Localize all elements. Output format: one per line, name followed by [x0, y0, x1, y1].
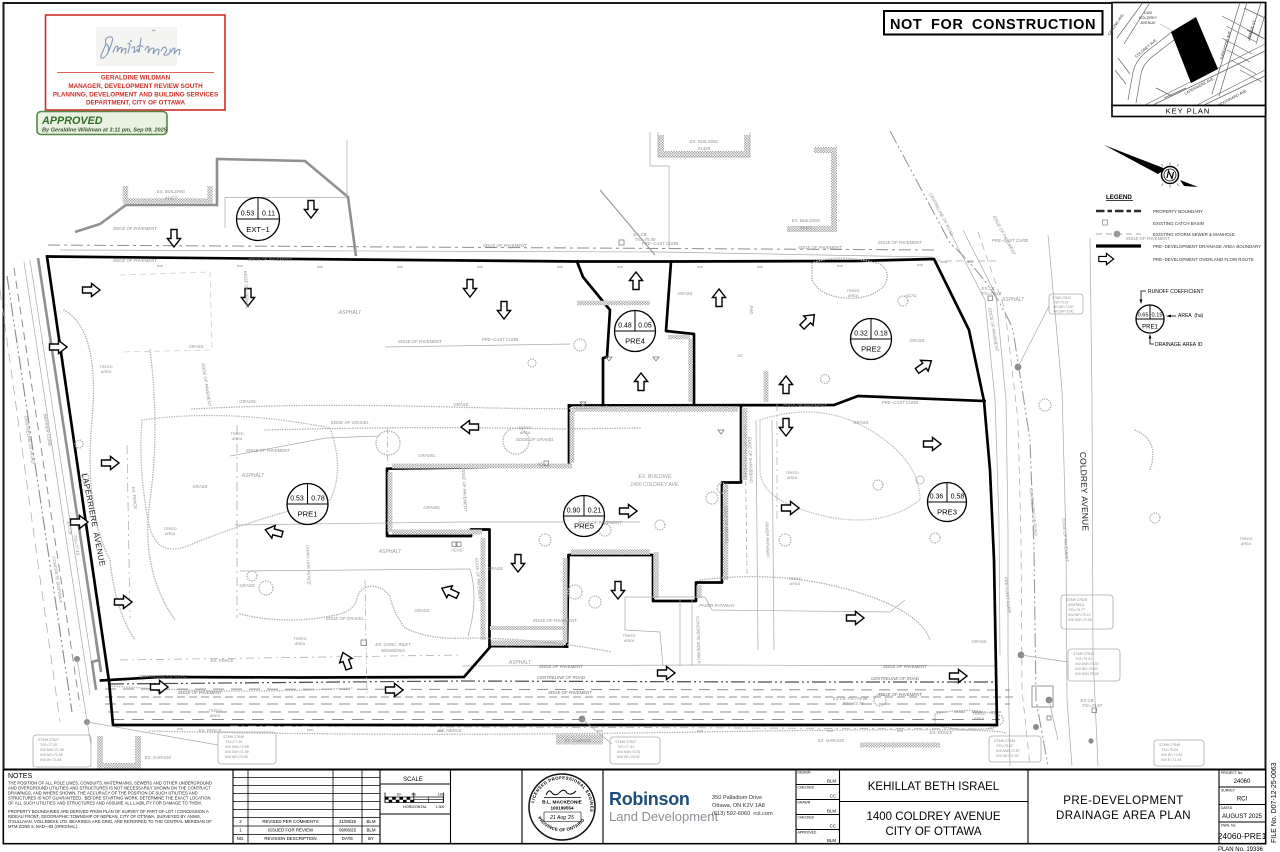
svg-text:OF ALL SUCH UTILITIES AND STRU: OF ALL SUCH UTILITIES AND STRUCTURES AND… [8, 801, 202, 806]
svg-text:COLDREY: COLDREY [1139, 16, 1158, 20]
svg-text:EX. GARAGE: EX. GARAGE [818, 738, 845, 743]
svg-text:EX. FENCE: EX. FENCE [131, 486, 138, 509]
svg-text:EX. BUILDING: EX. BUILDING [792, 218, 821, 223]
svg-text:GRASS: GRASS [677, 291, 692, 296]
svg-text:ISSUED FOR REVIEW: ISSUED FOR REVIEW [268, 828, 314, 833]
svg-text:ASPHALT: ASPHALT [508, 660, 532, 666]
svg-text:0.65: 0.65 [1138, 313, 1149, 319]
svg-text:INV.SE=70.83: INV.SE=70.83 [1075, 667, 1098, 671]
svg-text:GRASS: GRASS [188, 344, 203, 349]
svg-text:DRAWN: DRAWN [798, 801, 811, 805]
svg-text:GRASS: GRASS [487, 566, 502, 571]
svg-text:CENTRELINE OF ROAD: CENTRELINE OF ROAD [537, 675, 585, 680]
svg-text:ASPHALT: ASPHALT [378, 549, 402, 555]
svg-text:APPROVED: APPROVED [41, 115, 103, 127]
svg-text:DEPARTMENT, CITY OF OTTAWA: DEPARTMENT, CITY OF OTTAWA [86, 100, 186, 107]
svg-text:EX. BUILDING: EX. BUILDING [157, 189, 186, 194]
svg-text:EDGE OF PAVEMENT: EDGE OF PAVEMENT [1061, 518, 1069, 562]
svg-text:1:300: 1:300 [436, 805, 445, 809]
svg-text:0.36: 0.36 [930, 494, 944, 501]
svg-text:DRAINAGE AREA PLAN: DRAINAGE AREA PLAN [1056, 810, 1191, 822]
svg-text:PRE−DEVELOPMENT OVERLAND FLOW: PRE−DEVELOPMENT OVERLAND FLOW ROUTE [1153, 257, 1254, 262]
svg-text:GRASS: GRASS [909, 338, 924, 343]
svg-text:GRASS: GRASS [414, 608, 429, 613]
svg-text:EDGE OF GRAVEL: EDGE OF GRAVEL [326, 616, 364, 621]
svg-text:NOT FOR CONSTRUCTION: NOT FOR CONSTRUCTION [890, 17, 1096, 33]
svg-text:PRE4: PRE4 [625, 337, 645, 346]
svg-text:(BURIED): (BURIED) [1068, 603, 1084, 607]
svg-text:EX. FENCE: EX. FENCE [211, 658, 234, 663]
svg-text:STMH 27627: STMH 27627 [38, 738, 60, 742]
svg-text:#1422: #1422 [800, 225, 813, 230]
svg-text:RUNOFF COEFFICIENT: RUNOFF COEFFICIENT [1148, 289, 1204, 295]
svg-text:350 Palladium Drive: 350 Palladium Drive [712, 795, 762, 801]
svg-text:EDGE OF PAVEMENT: EDGE OF PAVEMENT [548, 690, 592, 695]
svg-text:BLM: BLM [827, 809, 836, 814]
svg-text:AREA: AREA [519, 430, 531, 435]
svg-text:PRE−CAST CURB: PRE−CAST CURB [1003, 577, 1012, 614]
svg-text:D/W: D/W [437, 729, 443, 733]
svg-text:DATED: DATED [1221, 806, 1233, 810]
svg-text:Robinson: Robinson [609, 789, 690, 809]
svg-text:EDGE OF PAVEMENT: EDGE OF PAVEMENT [798, 245, 842, 250]
svg-text:INV.SE=72.92: INV.SE=72.92 [996, 754, 1019, 758]
svg-text:CENTRELINE OF ROAD: CENTRELINE OF ROAD [1028, 488, 1038, 536]
svg-text:INV.SW=73.08: INV.SW=73.08 [1075, 672, 1099, 676]
svg-text:#1428: #1428 [698, 146, 711, 151]
svg-text:CC: CC [830, 824, 836, 829]
svg-text:0.53: 0.53 [241, 211, 255, 218]
svg-text:D/W: D/W [237, 264, 243, 268]
svg-text:INV.=73.76: INV.=73.76 [842, 701, 864, 706]
svg-text:EDGE OF PAVEMENT: EDGE OF PAVEMENT [178, 690, 222, 695]
svg-text:T/G=77.41: T/G=77.41 [617, 745, 634, 749]
svg-text:INV.E=71.93: INV.E=71.93 [1161, 758, 1181, 762]
svg-text:D/W: D/W [897, 729, 903, 733]
svg-text:T/G=75.01: T/G=75.01 [1075, 657, 1092, 661]
svg-text:PLAN No. 19336: PLAN No. 19336 [1218, 847, 1264, 852]
svg-text:CC: CC [830, 794, 836, 799]
svg-text:INV.NW=71.38: INV.NW=71.38 [40, 748, 64, 752]
svg-text:ACAC: ACAC [904, 293, 918, 298]
svg-text:PRE−CAST CURB: PRE−CAST CURB [882, 400, 918, 405]
svg-text:INV.NW=70.82: INV.NW=70.82 [1075, 662, 1099, 666]
svg-text:INV.SW=73.42: INV.SW=73.42 [1053, 310, 1074, 314]
svg-text:BLM: BLM [827, 838, 836, 843]
svg-text:EDGE OF PAVEMENT: EDGE OF PAVEMENT [201, 363, 213, 407]
svg-text:0.58: 0.58 [951, 494, 965, 501]
svg-text:EDGE OF GRAVEL: EDGE OF GRAVEL [331, 420, 369, 425]
svg-text:INV.SE=74.02: INV.SE=74.02 [617, 755, 640, 759]
svg-text:MANAGER, DEVELOPMENT REVIEW SO: MANAGER, DEVELOPMENT REVIEW SOUTH [68, 83, 203, 90]
svg-text:D/W: D/W [757, 265, 763, 269]
svg-text:PRE1: PRE1 [1142, 325, 1158, 331]
svg-text:PROJECT No.: PROJECT No. [1221, 771, 1243, 775]
svg-text:PAVER PATHWAY: PAVER PATHWAY [764, 522, 770, 559]
svg-text:Land Development: Land Development [609, 809, 719, 824]
svg-text:EDGE OF PAVEMENT: EDGE OF PAVEMENT [246, 448, 290, 453]
svg-text:0.05: 0.05 [638, 323, 652, 330]
svg-text:#1427: #1427 [165, 196, 178, 201]
svg-text:CENTRELINE OF ROAD: CENTRELINE OF ROAD [871, 676, 919, 681]
svg-text:INV.SW=73.36: INV.SW=73.36 [1068, 618, 1092, 622]
svg-text:PROPERTY BOUNDARY: PROPERTY BOUNDARY [1153, 209, 1203, 214]
svg-text:EDGE OF PAVEMENT: EDGE OF PAVEMENT [883, 664, 927, 669]
svg-text:0.11: 0.11 [262, 211, 275, 218]
svg-text:FILE No. D07-12-25-0063: FILE No. D07-12-25-0063 [1271, 762, 1278, 843]
svg-text:EX. BUILDING: EX. BUILDING [690, 139, 719, 144]
svg-text:NO.: NO. [237, 836, 245, 841]
svg-text:EX.CB: EX.CB [66, 521, 73, 535]
svg-text:INV.SW=71.69: INV.SW=71.69 [225, 750, 249, 754]
svg-text:09/06/25: 09/06/25 [339, 828, 357, 833]
svg-text:EDGE OF PAVEMENT: EDGE OF PAVEMENT [483, 243, 527, 248]
svg-text:T/G=75.40: T/G=75.40 [635, 237, 656, 242]
svg-text:D/W: D/W [617, 265, 623, 269]
svg-text:EDGE OF PAVEMENT: EDGE OF PAVEMENT [248, 257, 292, 262]
svg-text:EX. CONC. INLET: EX. CONC. INLET [375, 642, 411, 647]
svg-text:D/W: D/W [941, 260, 947, 264]
svg-text:0.21: 0.21 [588, 508, 602, 515]
svg-text:D/W: D/W [837, 264, 843, 268]
svg-text:INV.NW=74.01: INV.NW=74.01 [617, 750, 641, 754]
svg-text:EXT−1: EXT−1 [246, 225, 269, 234]
svg-text:STMH 27639: STMH 27639 [994, 739, 1015, 743]
svg-text:KEHILLAT BETH ISRAEL: KEHILLAT BETH ISRAEL [868, 781, 1000, 793]
svg-text:DATE: DATE [342, 836, 353, 841]
svg-text:EX. FENCE: EX. FENCE [199, 728, 222, 733]
svg-text:D/W: D/W [157, 264, 163, 268]
svg-text:EDGE OF PAVEMENT: EDGE OF PAVEMENT [578, 520, 622, 525]
svg-text:KEY PLAN: KEY PLAN [1166, 107, 1211, 116]
svg-text:EXISTING STORM SEWER & MANHOLE: EXISTING STORM SEWER & MANHOLE [1153, 232, 1235, 237]
svg-text:STMH 27648: STMH 27648 [1159, 743, 1180, 747]
svg-text:EDGE OF PAVEMENT: EDGE OF PAVEMENT [113, 226, 157, 231]
svg-text:APPROVED: APPROVED [798, 831, 817, 835]
svg-text:EDGE OF PAVEMENT: EDGE OF PAVEMENT [398, 339, 442, 344]
svg-text:GRAVEL: GRAVEL [423, 505, 441, 510]
svg-text:STMH 27625: STMH 27625 [1052, 296, 1071, 300]
svg-text:AREA: AREA [623, 638, 635, 643]
svg-text:EX. GARAGE: EX. GARAGE [145, 755, 172, 760]
svg-text:24060-PRE1: 24060-PRE1 [1218, 831, 1267, 841]
svg-text:AVENUE: AVENUE [1140, 21, 1156, 25]
svg-text:Ottawa, ON K2V 1A8: Ottawa, ON K2V 1A8 [712, 803, 765, 809]
svg-text:EDGE OF GRAVEL: EDGE OF GRAVEL [516, 437, 554, 442]
svg-text:BLM: BLM [366, 819, 375, 824]
svg-text:AREA: AREA [231, 436, 243, 441]
svg-text:GRAVEL: GRAVEL [418, 453, 436, 458]
svg-text:STMH 27626: STMH 27626 [1066, 598, 1087, 602]
svg-text:INV.NW=74.99: INV.NW=74.99 [225, 745, 249, 749]
svg-text:GRASS: GRASS [971, 639, 986, 644]
svg-text:0.15: 0.15 [1152, 313, 1163, 319]
svg-text:BLM: BLM [827, 779, 836, 784]
svg-text:RCI: RCI [1237, 797, 1248, 803]
svg-text:21 Aug '25: 21 Aug '25 [549, 815, 574, 821]
svg-text:AREA: AREA [209, 713, 221, 718]
svg-text:CHAIN LINK FENCE: CHAIN LINK FENCE [305, 545, 311, 585]
svg-text:1400 COLDREY AVE.: 1400 COLDREY AVE. [630, 482, 679, 488]
svg-text:2m: 2m [397, 793, 402, 797]
svg-text:DWG. No.: DWG. No. [1221, 824, 1237, 828]
svg-text:STMH 27619: STMH 27619 [1073, 652, 1094, 656]
svg-text:EX. GARAGE: EX. GARAGE [565, 738, 592, 743]
svg-text:0.18: 0.18 [874, 331, 888, 338]
svg-text:PRE1: PRE1 [298, 510, 318, 519]
svg-text:BARRIER CURB: BARRIER CURB [42, 413, 52, 446]
svg-text:12m: 12m [438, 793, 445, 797]
svg-text:AREA: AREA [786, 475, 798, 480]
svg-text:EDGE OF PAVEMENT: EDGE OF PAVEMENT [461, 468, 468, 512]
svg-text:AREA: AREA [294, 641, 306, 646]
svg-text:EXISTING CATCH BASIN: EXISTING CATCH BASIN [1153, 221, 1204, 226]
svg-text:0.90: 0.90 [567, 508, 581, 515]
svg-text:PRE-DEVELOPMENT: PRE-DEVELOPMENT [1063, 795, 1183, 807]
svg-text:T/G=75.04: T/G=75.04 [1161, 748, 1178, 752]
svg-text:T/G=75.14: T/G=75.14 [1053, 301, 1068, 305]
svg-text:21/08/25: 21/08/25 [339, 819, 357, 824]
svg-text:CONCRETE SIDEWALK: CONCRETE SIDEWALK [51, 556, 64, 605]
svg-text:INV.NE=74.99: INV.NE=74.99 [225, 755, 248, 759]
svg-text:AC: AC [736, 353, 744, 358]
svg-text:DRAINAGE AREA ID: DRAINAGE AREA ID [1155, 342, 1203, 348]
svg-text:T/G=75.02: T/G=75.02 [996, 744, 1013, 748]
svg-text:ASPHALT: ASPHALT [1001, 297, 1025, 303]
svg-text:24060: 24060 [1234, 779, 1251, 785]
svg-text:REVISED PER COMMENTS: REVISED PER COMMENTS [262, 819, 318, 824]
svg-text:PAVER PATHWAY: PAVER PATHWAY [699, 603, 736, 608]
svg-text:CENTRELINE OF ROAD: CENTRELINE OF ROAD [23, 416, 35, 464]
svg-text:1400 COLDREY AVENUE: 1400 COLDREY AVENUE [866, 811, 1000, 823]
svg-text:D/W: D/W [917, 263, 923, 267]
svg-text:PRE−CAST CURB: PRE−CAST CURB [482, 337, 518, 342]
svg-text:GRAVEL: GRAVEL [239, 399, 257, 404]
svg-text:D/W: D/W [967, 260, 973, 264]
svg-text:T/G=74.87: T/G=74.87 [1082, 703, 1103, 708]
svg-text:0.53: 0.53 [290, 496, 304, 503]
svg-text:D/W: D/W [697, 729, 703, 733]
svg-text:D/W: D/W [317, 265, 323, 269]
svg-text:GRASS: GRASS [853, 420, 868, 425]
svg-text:EX. FENCE: EX. FENCE [930, 730, 953, 735]
svg-text:600x650mm: 600x650mm [381, 648, 405, 653]
svg-text:INV.NE=73.40: INV.NE=73.40 [1053, 305, 1073, 309]
svg-text:GERALDINE WILDMAN: GERALDINE WILDMAN [101, 75, 171, 82]
svg-text:GRASS: GRASS [239, 583, 254, 588]
svg-text:AREA (ha): AREA (ha) [1178, 313, 1204, 319]
svg-text:NOTES: NOTES [8, 773, 32, 780]
svg-text:EDGE OF PAVEMENT: EDGE OF PAVEMENT [992, 215, 1017, 256]
svg-text:CHECKED: CHECKED [798, 816, 815, 820]
svg-text:D/W: D/W [307, 728, 313, 732]
svg-text:D/W: D/W [177, 727, 183, 731]
svg-text:T/G=74.77: T/G=74.77 [1068, 608, 1086, 612]
svg-text:AREA: AREA [789, 581, 801, 586]
svg-text:AREA: AREA [164, 531, 176, 536]
svg-text:D/W: D/W [557, 265, 563, 269]
svg-text:SCALE: SCALE [403, 777, 423, 783]
svg-text:EDGE OF PAVEMENT: EDGE OF PAVEMENT [113, 258, 157, 263]
svg-text:CENTRELINE OF ROAD: CENTRELINE OF ROAD [139, 674, 187, 679]
svg-text:INV.NW=72.87: INV.NW=72.87 [996, 749, 1021, 753]
svg-text:PRE2: PRE2 [861, 345, 881, 354]
svg-text:ASPHALT: ASPHALT [241, 473, 265, 479]
svg-text:REVISION DESCRIPTION: REVISION DESCRIPTION [264, 836, 316, 841]
svg-text:BLM: BLM [366, 828, 375, 833]
svg-text:0.32: 0.32 [854, 331, 868, 338]
svg-text:INV.NE=73.12: INV.NE=73.12 [1068, 613, 1091, 617]
svg-text:T/G=77.20: T/G=77.20 [40, 743, 57, 747]
svg-text:INV.NE=71.50: INV.NE=71.50 [40, 753, 63, 757]
svg-text:GRASS: GRASS [453, 402, 468, 407]
svg-text:BY: BY [368, 836, 374, 841]
svg-text:EDGE OF PAVEMENT: EDGE OF PAVEMENT [878, 240, 922, 245]
svg-text:CITY OF OTTAWA: CITY OF OTTAWA [885, 826, 981, 838]
svg-text:0.48: 0.48 [618, 323, 632, 330]
svg-text:AREA: AREA [973, 716, 985, 721]
svg-text:D/W: D/W [477, 265, 483, 269]
svg-text:EDGE OF GRAVEL: EDGE OF GRAVEL [243, 271, 250, 310]
svg-text:SURVEY: SURVEY [1221, 789, 1236, 793]
svg-text:D/W: D/W [827, 729, 833, 733]
svg-text:4m: 4m [411, 793, 416, 797]
svg-text:DESIGN: DESIGN [798, 771, 812, 775]
svg-text:EDGE OF PAVEMENT: EDGE OF PAVEMENT [539, 664, 583, 669]
svg-text:AREA: AREA [1240, 541, 1252, 546]
svg-text:T/G=75.13: T/G=75.13 [981, 291, 1002, 296]
svg-text:STMH 27647: STMH 27647 [615, 740, 637, 744]
svg-text:INV.W=71.84: INV.W=71.84 [40, 758, 61, 762]
svg-text:D/W: D/W [697, 265, 703, 269]
svg-text:EDGE OF PAVEMENT: EDGE OF PAVEMENT [533, 618, 577, 623]
svg-text:LEGEND: LEGEND [1106, 194, 1132, 201]
svg-text:ASPHALT: ASPHALT [338, 310, 362, 316]
svg-text:MTM ZONE 9, NAD—83 (ORIGINAL).: MTM ZONE 9, NAD—83 (ORIGINAL). [8, 824, 78, 829]
svg-text:AC: AC [536, 462, 544, 467]
svg-text:PRE−DEVELOPMENT DRAINAGE AREA: PRE−DEVELOPMENT DRAINAGE AREA BOUNDARY [1153, 244, 1261, 249]
svg-text:T/G=77.16: T/G=77.16 [225, 740, 242, 744]
svg-text:By Geraldine Wildman at 3:11 p: By Geraldine Wildman at 3:11 pm, Sep 09,… [42, 128, 168, 134]
svg-text:GRASS: GRASS [192, 484, 207, 489]
svg-text:CHECKED: CHECKED [798, 786, 815, 790]
svg-text:AREA: AREA [100, 369, 112, 374]
svg-text:PRE3: PRE3 [937, 508, 957, 517]
svg-text:0.78: 0.78 [311, 496, 325, 503]
svg-text:1400: 1400 [1144, 11, 1152, 15]
svg-text:CENTRELINE OF ROAD: CENTRELINE OF ROAD [928, 192, 955, 237]
svg-text:ACAC: ACAC [450, 548, 464, 553]
svg-text:STMH 27648: STMH 27648 [223, 735, 244, 739]
svg-text:EDGE OF SHRUBBING: EDGE OF SHRUBBING [747, 437, 754, 484]
svg-text:AREA: AREA [847, 293, 859, 298]
svg-text:COLDREY AVENUE: COLDREY AVENUE [1078, 452, 1091, 532]
svg-text:100199554: 100199554 [551, 806, 574, 811]
svg-text:CONCRETE SIDEWALK: CONCRETE SIDEWALK [695, 616, 702, 665]
svg-text:(613) 592-6060 rcii.com: (613) 592-6060 rcii.com [712, 811, 773, 817]
svg-text:HORIZONTAL: HORIZONTAL [403, 805, 427, 809]
svg-text:EX. BUILDING: EX. BUILDING [638, 474, 671, 480]
svg-text:D/W: D/W [397, 265, 403, 269]
svg-text:INV.W=71.93: INV.W=71.93 [1161, 753, 1182, 757]
svg-text:PLANNING, DEVELOPMENT AND BUIL: PLANNING, DEVELOPMENT AND BUILDING SERVI… [53, 92, 218, 99]
svg-text:AUGUST 2025: AUGUST 2025 [1222, 814, 1263, 820]
svg-text:EDGE OF PAVEMENT: EDGE OF PAVEMENT [878, 692, 922, 697]
svg-text:EDGE OF PAVEMENT: EDGE OF PAVEMENT [783, 403, 827, 408]
svg-text:RAD: RAD [749, 305, 754, 314]
